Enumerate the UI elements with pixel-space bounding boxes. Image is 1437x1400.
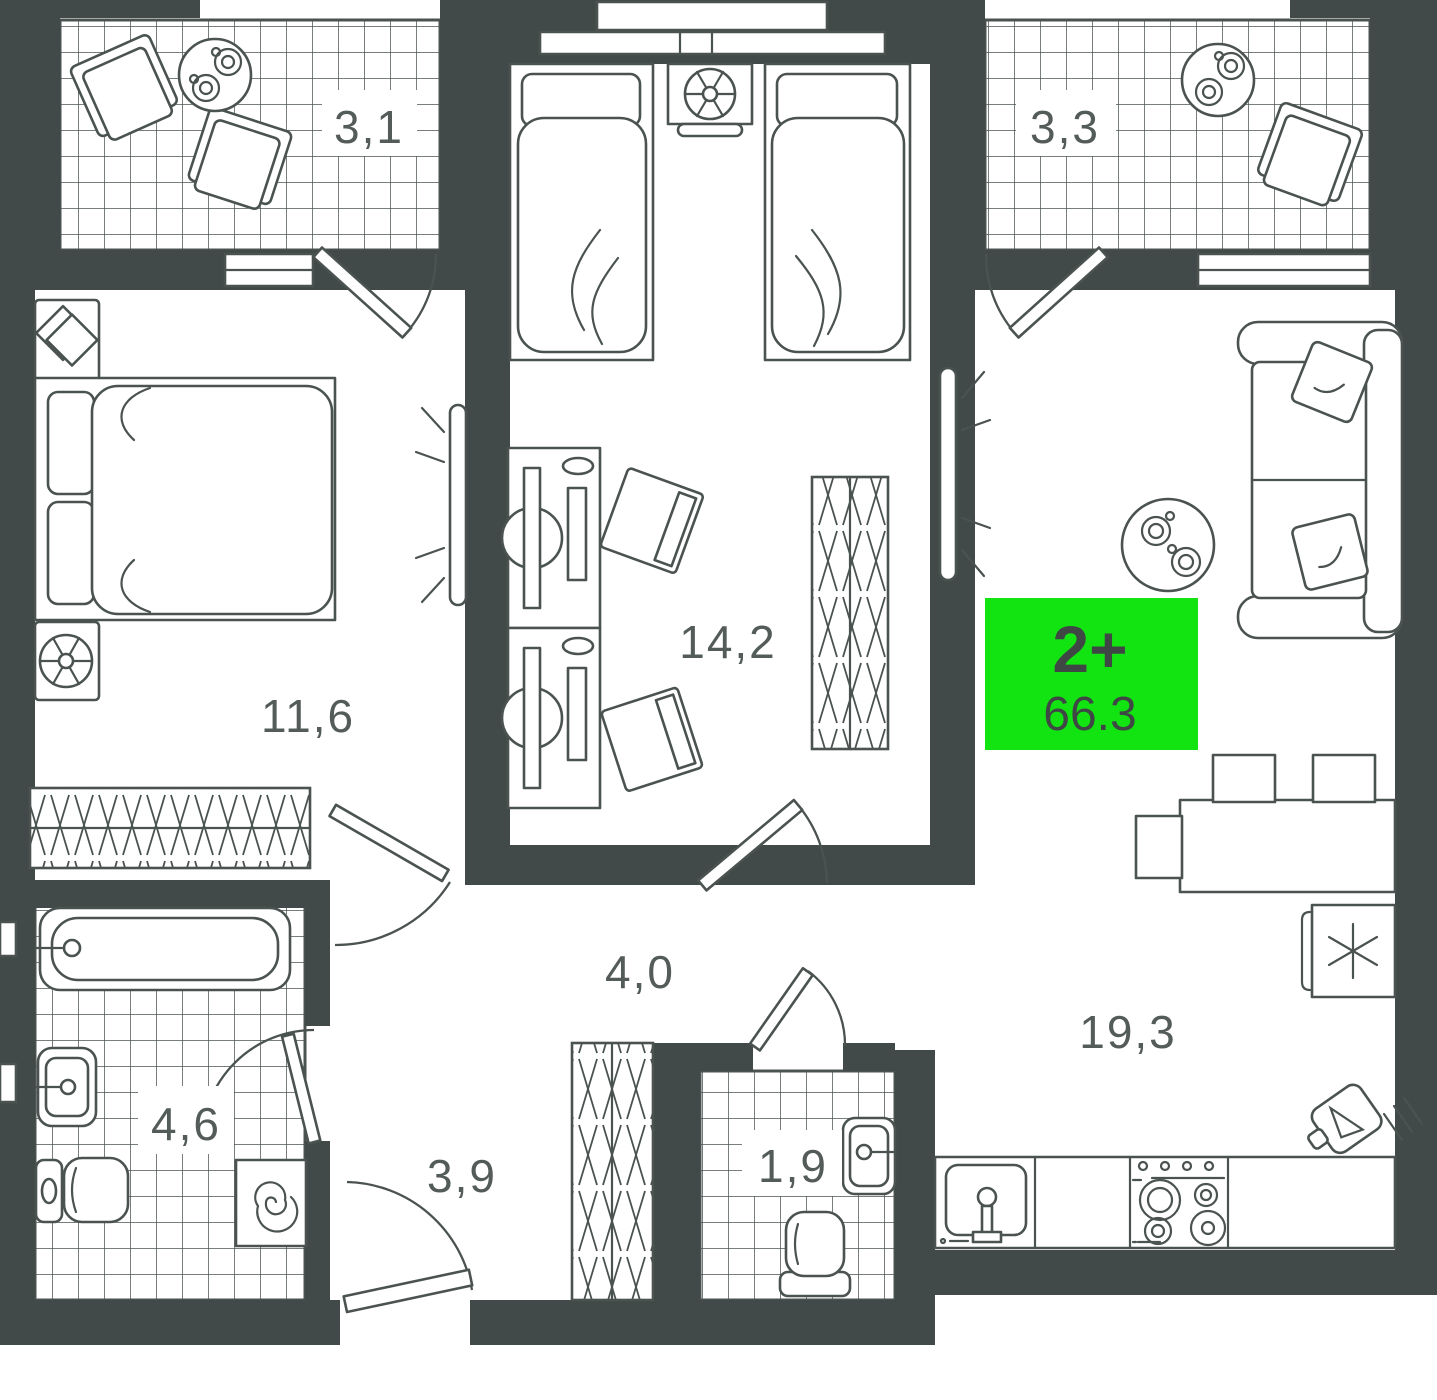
tv (416, 405, 466, 605)
nightstand (35, 300, 99, 382)
wall-niche (0, 1064, 16, 1102)
bathroom-sink (36, 1048, 96, 1126)
door-wc (750, 968, 845, 1050)
room-label-bedroom: 11,6 (261, 690, 355, 742)
room-label-wc: 1,9 (758, 1140, 828, 1192)
toilet (780, 1212, 850, 1296)
nightstand-vent (35, 622, 99, 700)
fridge (1302, 905, 1395, 997)
room-label-kitchen-living: 19,3 (1079, 1006, 1177, 1058)
bedside-vent-unit (668, 64, 752, 136)
fan-icon (40, 635, 92, 687)
floor-plan-page: 3,1 3,3 11,6 14,2 4,0 4,6 3,9 1,9 19,3 2… (0, 0, 1437, 1400)
sofa-cushion (1291, 513, 1369, 591)
window-middle (540, 32, 885, 54)
sofa (1238, 322, 1402, 638)
second-room-furniture (502, 64, 910, 808)
shaft-box (597, 2, 827, 30)
washing-machine (236, 1160, 306, 1246)
apartment-type-label: 2+ (1052, 612, 1127, 686)
apartment-badge: 2+ 66.3 (985, 598, 1198, 750)
window-balcony-left (225, 254, 313, 286)
toilet (36, 1158, 128, 1222)
coffee-table (179, 39, 251, 111)
room-label-balcony-left: 3,1 (334, 101, 404, 153)
coffee-table (1122, 499, 1214, 591)
single-bed (510, 64, 653, 360)
kitchen-sink (941, 1165, 1026, 1243)
bathtub (36, 908, 290, 990)
wc-sink (843, 1118, 895, 1194)
kitchen-living-furniture (935, 322, 1422, 1248)
room-label-bathroom: 4,6 (151, 1098, 221, 1150)
single-bed (765, 64, 910, 360)
door-bedroom (330, 805, 451, 945)
desk (502, 628, 600, 808)
wall-niche (0, 922, 16, 956)
cutting-board-icon (1297, 1081, 1386, 1165)
double-bed (35, 378, 335, 620)
coffee-table (1182, 44, 1254, 116)
desk-chair (600, 468, 704, 574)
wardrobe (812, 477, 888, 749)
room-label-corridor: 3,9 (427, 1150, 497, 1202)
desk (502, 448, 600, 628)
corridor-wardrobe (572, 1043, 653, 1300)
floor-plan: 3,1 3,3 11,6 14,2 4,0 4,6 3,9 1,9 19,3 2… (0, 0, 1437, 1400)
room-label-balcony-right: 3,3 (1030, 101, 1100, 153)
wardrobe (30, 788, 310, 868)
desk-chair (601, 687, 703, 792)
fan-icon (685, 69, 735, 119)
window-balcony-right (1198, 254, 1370, 286)
bar-table (1136, 755, 1395, 892)
apartment-area-label: 66.3 (1043, 688, 1136, 741)
room-label-hallway: 4,0 (605, 946, 675, 998)
bedroom-furniture (30, 300, 466, 868)
room-label-second-room: 14,2 (679, 616, 777, 668)
